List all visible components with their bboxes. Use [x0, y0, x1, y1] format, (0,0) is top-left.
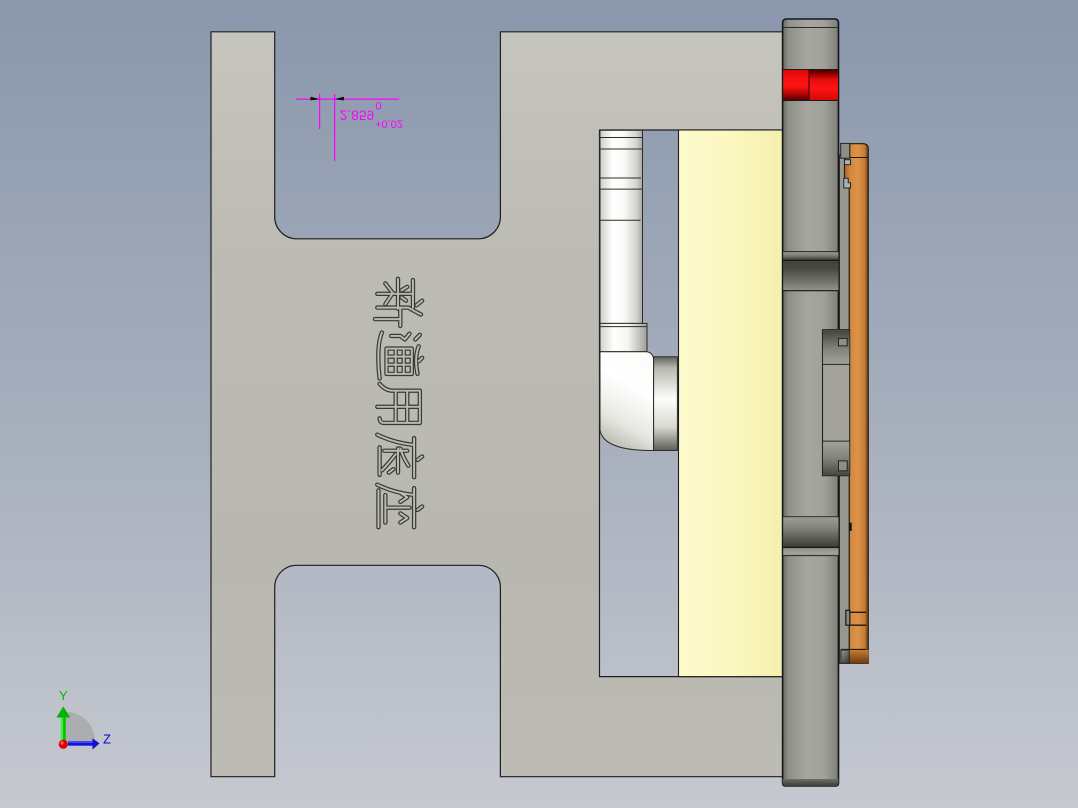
- svg-text:Z: Z: [103, 732, 111, 747]
- svg-text:Y: Y: [59, 688, 68, 703]
- svg-text:+0.02: +0.02: [375, 118, 403, 130]
- svg-text:2.859: 2.859: [340, 108, 375, 123]
- svg-text:0: 0: [375, 99, 381, 111]
